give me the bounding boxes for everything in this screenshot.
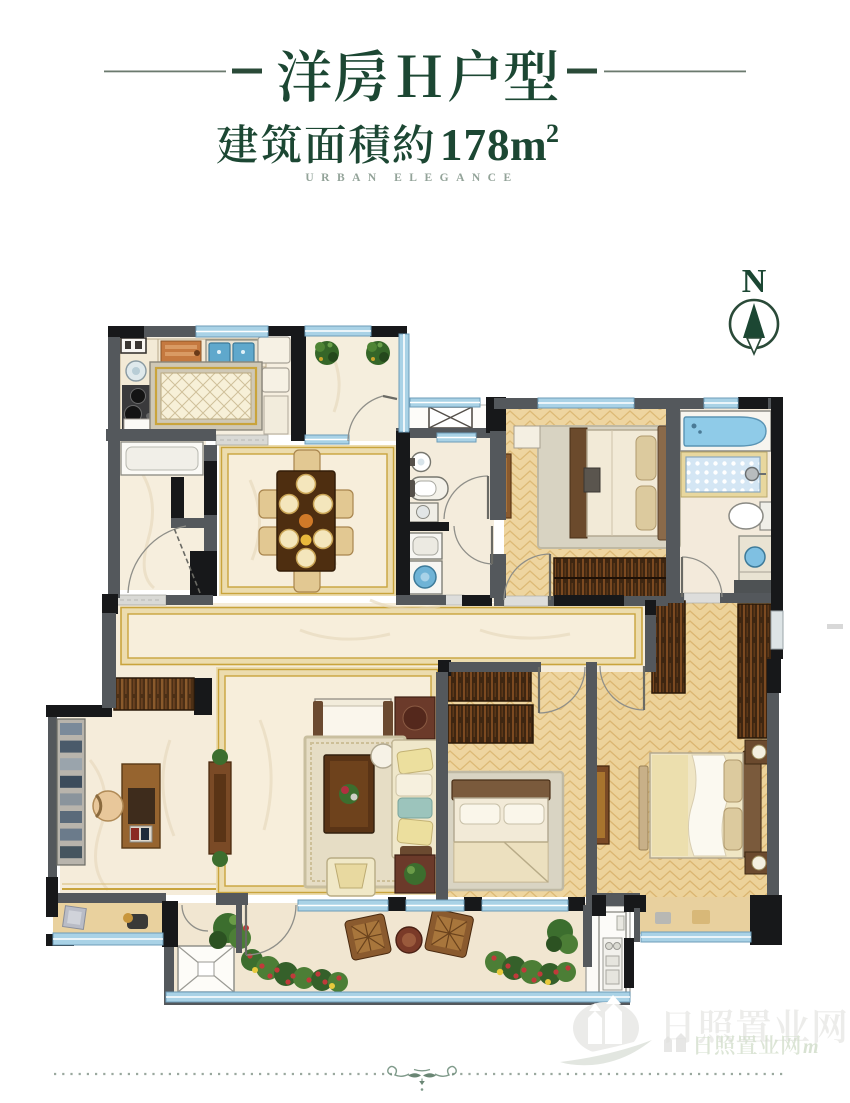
svg-text:178: 178: [440, 120, 511, 170]
svg-text:URBAN ELEGANCE: URBAN ELEGANCE: [305, 172, 518, 184]
svg-text:m: m: [510, 121, 547, 170]
svg-text:2: 2: [546, 119, 559, 148]
svg-text:N: N: [742, 263, 767, 300]
svg-text:m: m: [803, 1036, 819, 1058]
